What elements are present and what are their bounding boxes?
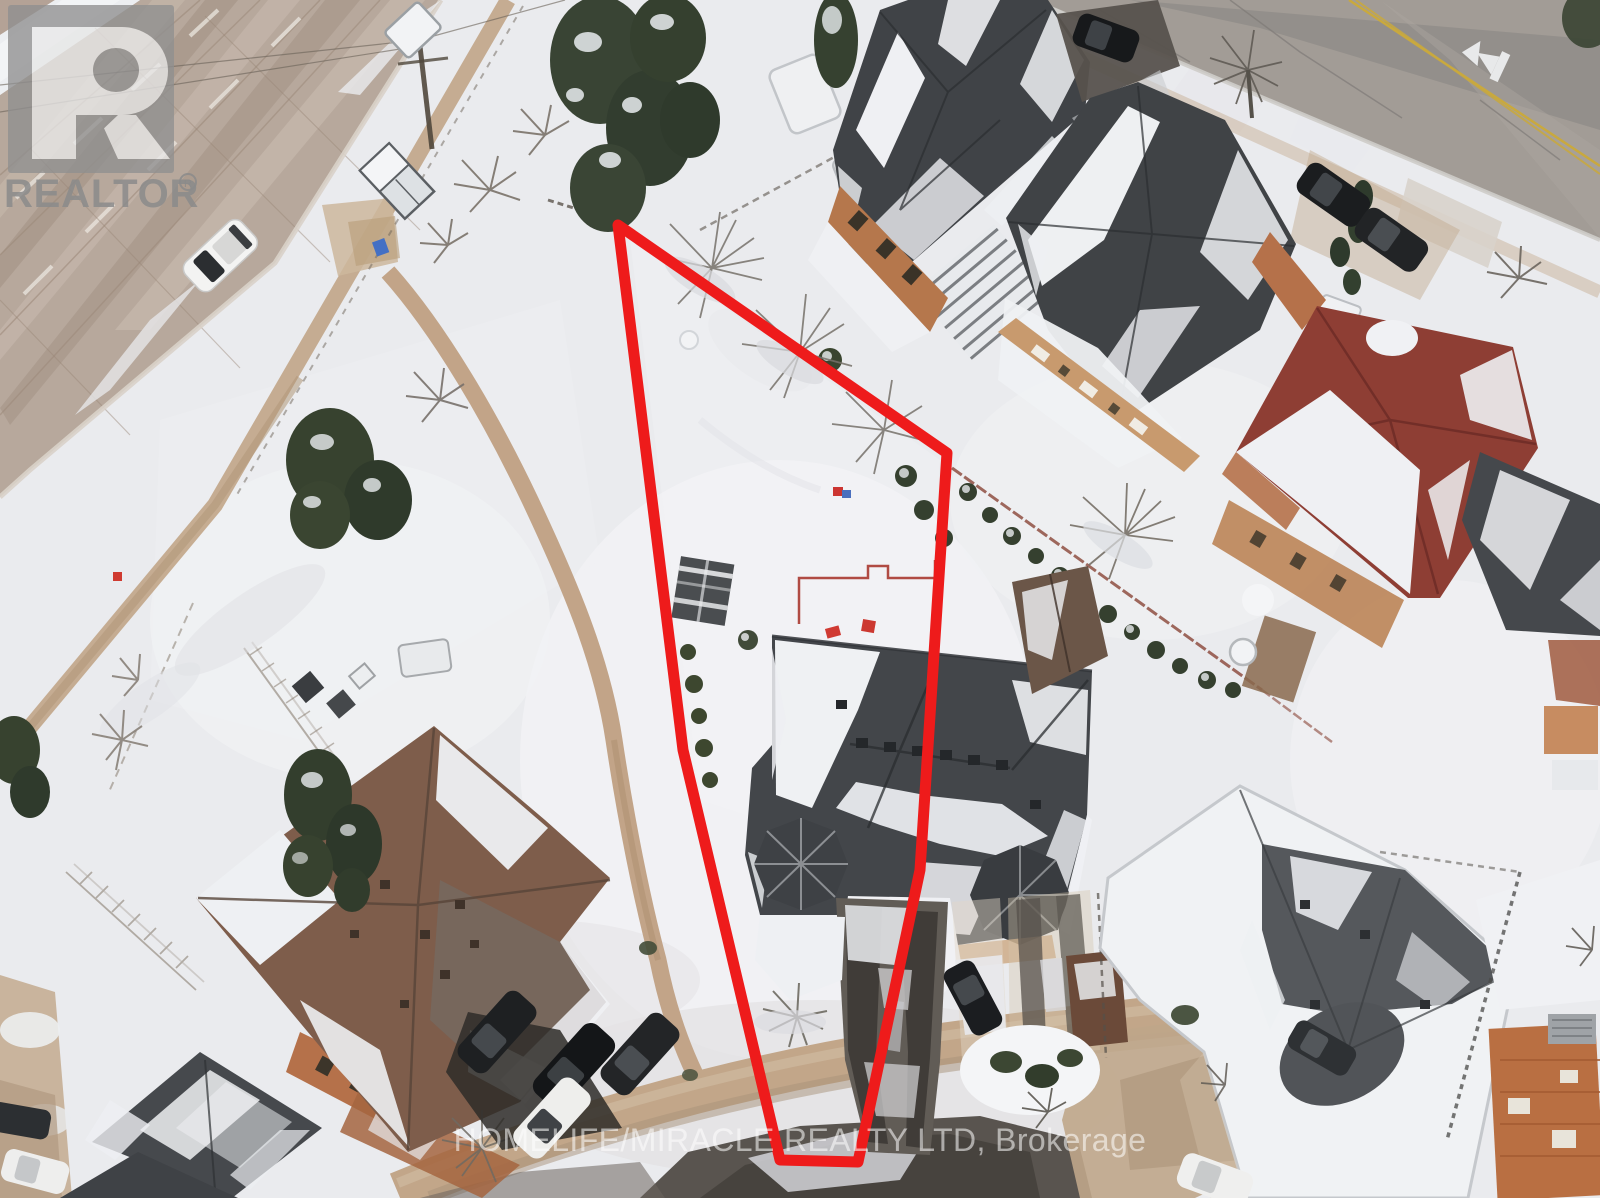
svg-text:HOMELIFE/MIRACLE REALTY LTD, B: HOMELIFE/MIRACLE REALTY LTD, Brokerage	[454, 1122, 1147, 1158]
svg-text:R: R	[184, 178, 192, 190]
svg-text:REALTOR: REALTOR	[4, 172, 199, 216]
